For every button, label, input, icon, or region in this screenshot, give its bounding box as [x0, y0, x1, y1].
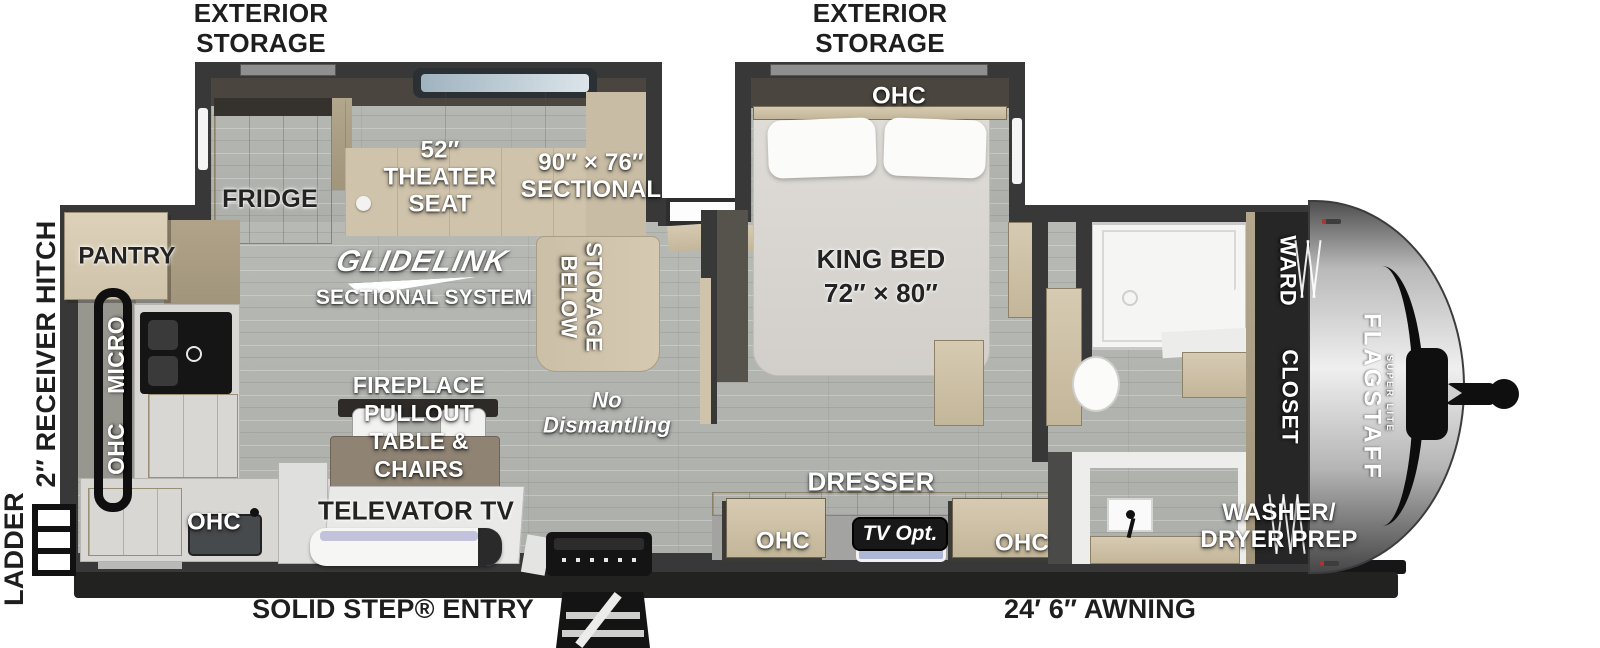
receiver-hitch-label: 2″ RECEIVER HITCH [31, 221, 61, 488]
ward-label: WARD [1275, 235, 1300, 306]
stove-grate-1 [148, 320, 178, 350]
exterior-storage-label-right: EXTERIOR STORAGE [813, 0, 948, 59]
king-bed-label: KING BED 72″ × 80″ [817, 243, 946, 311]
pantry-label: PANTRY [78, 244, 175, 271]
ladder-rung-1 [38, 526, 70, 532]
exterior-storage-bay-left [240, 64, 336, 76]
tv-opt-label: TV Opt. [863, 522, 938, 546]
bed-pillow-left [767, 117, 877, 179]
bedroom-slide-left-wall [735, 62, 751, 222]
closet-label: CLOSET [1277, 349, 1302, 444]
ladder-icon [32, 504, 76, 576]
brand-sub-logo: SUPER LITE [1385, 355, 1395, 433]
window-sill-left [667, 224, 703, 252]
sectional-label: 90″ × 76″ SECTIONAL [521, 150, 661, 204]
sink-faucet-icon [250, 508, 259, 517]
washer-room-west-wall [1072, 452, 1090, 564]
shower-drain-icon [1122, 290, 1138, 306]
televator-tv-label: TELEVATOR TV [318, 496, 514, 525]
no-dismantling-label: No Dismantling [543, 388, 671, 437]
stove-burner-icon [186, 346, 202, 362]
living-slide-window [198, 108, 208, 170]
fireplace-label: FIREPLACE PULLOUT TABLE & CHAIRS [353, 371, 485, 483]
entry-step-tread-2 [562, 630, 644, 637]
griddle-knobs-icon [562, 558, 638, 562]
tongue-jack-knob [1489, 379, 1519, 409]
stove-grate-2 [148, 356, 178, 386]
cupholder-icon [356, 196, 371, 211]
bedroom-slide-window [1012, 118, 1022, 184]
bath-vanity [1046, 288, 1082, 426]
bed-pillow-right [883, 117, 987, 179]
exterior-storage-bay-right [770, 64, 988, 76]
washer-dryer-prep-label: WASHER/ DRYER PREP [1200, 500, 1357, 554]
kitchen-drawers [148, 394, 238, 478]
bedroom-ohc-label: OHC [872, 84, 926, 111]
theater-seat-label: 52″ THEATER SEAT [384, 138, 497, 219]
televator-tv-screen [320, 531, 478, 541]
exterior-storage-label-left: EXTERIOR STORAGE [194, 0, 329, 59]
micro-label: MICRO [104, 316, 130, 394]
storage-below-label: STORAGE BELOW [556, 242, 605, 352]
cap-marker-top [1322, 219, 1341, 224]
awning-label: 24′ 6″ AWNING [1004, 594, 1196, 624]
solid-step-entry-label: SOLID STEP® ENTRY [252, 594, 534, 624]
washer-room-north-wall [1072, 452, 1252, 468]
glidelink-sub-label: SECTIONAL SYSTEM [316, 286, 532, 310]
ladder-rung-2 [38, 548, 70, 554]
fridge-label: FRIDGE [222, 185, 318, 213]
skylight-glass [421, 74, 589, 92]
tv-opt-badge: TV Opt. [852, 517, 948, 551]
kitchen-ohc-wall-label: OHC [104, 423, 130, 475]
floorplan-canvas: EXTERIOR STORAGE EXTERIOR STORAGE LADDER… [0, 0, 1600, 648]
dresser-ohc-left-label: OHC [756, 529, 810, 556]
glidelink-logo: GLIDELINK [333, 245, 511, 279]
partition-end-cap [700, 278, 711, 424]
cap-marker-bottom [1320, 561, 1339, 566]
fridge-cabinet-top [214, 98, 332, 116]
brand-logo: FLAGSTAFF [1358, 313, 1385, 481]
dresser-ohc-right-label: OHC [995, 531, 1049, 558]
dresser-label: DRESSER [807, 467, 934, 496]
ladder-label: LADDER [0, 492, 29, 606]
tongue-jack-post [1406, 348, 1448, 440]
toilet-icon [1072, 356, 1120, 412]
bedroom-wardrobe-left [717, 210, 748, 382]
washer-room-wall-shadow [1048, 452, 1074, 564]
griddle-lid [554, 538, 644, 550]
kitchen-ohc-sink-label: OHC [187, 510, 241, 537]
bedroom-nightstand [934, 340, 984, 426]
